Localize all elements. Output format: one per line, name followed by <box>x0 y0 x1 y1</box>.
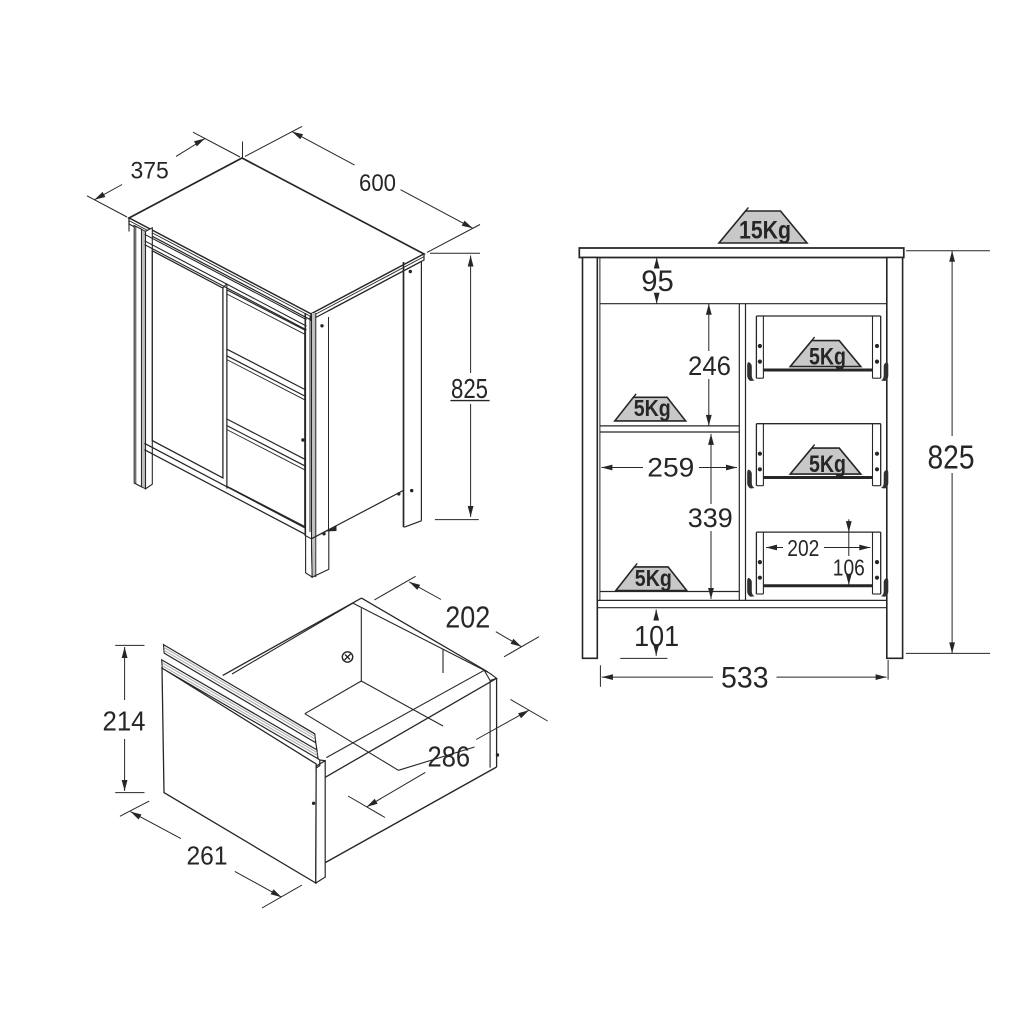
svg-text:825: 825 <box>928 439 975 476</box>
svg-text:106: 106 <box>833 555 865 581</box>
svg-text:214: 214 <box>103 705 146 736</box>
svg-text:95: 95 <box>641 265 674 298</box>
svg-text:533: 533 <box>721 662 769 695</box>
svg-text:5Kg: 5Kg <box>809 451 846 478</box>
svg-text:339: 339 <box>688 503 733 533</box>
svg-text:5Kg: 5Kg <box>635 565 672 591</box>
svg-text:286: 286 <box>428 742 471 774</box>
svg-text:202: 202 <box>445 599 490 634</box>
svg-text:15Kg: 15Kg <box>739 217 791 245</box>
svg-text:5Kg: 5Kg <box>634 395 671 421</box>
svg-text:825: 825 <box>451 373 488 404</box>
svg-text:5Kg: 5Kg <box>809 343 846 370</box>
svg-text:101: 101 <box>634 621 679 653</box>
svg-text:246: 246 <box>688 351 731 381</box>
svg-text:600: 600 <box>359 170 396 197</box>
svg-text:261: 261 <box>187 840 228 870</box>
svg-text:259: 259 <box>647 453 694 483</box>
svg-text:375: 375 <box>130 158 168 185</box>
svg-text:202: 202 <box>787 535 819 561</box>
